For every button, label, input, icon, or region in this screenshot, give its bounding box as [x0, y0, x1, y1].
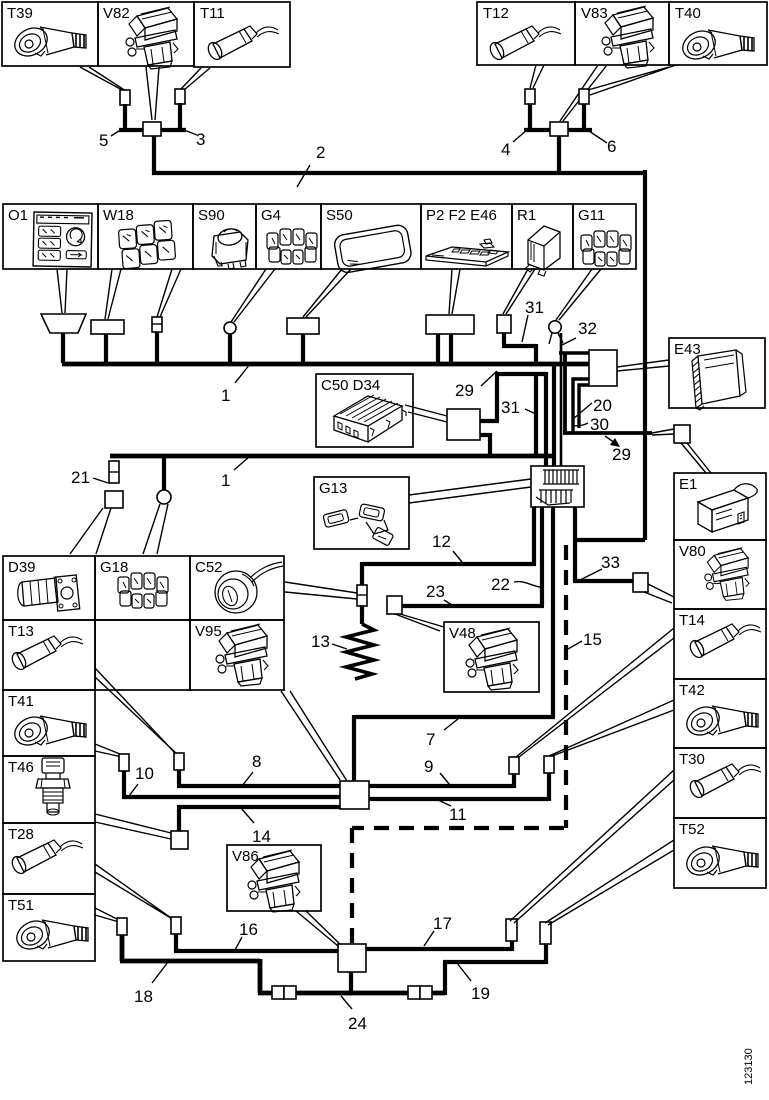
svg-text:T13: T13 [8, 623, 34, 640]
svg-text:T12: T12 [483, 5, 509, 22]
svg-text:T51: T51 [8, 897, 34, 914]
svg-text:G18: G18 [100, 559, 128, 576]
svg-text:T30: T30 [679, 751, 705, 768]
svg-text:G13: G13 [319, 480, 347, 497]
svg-text:C50 D34: C50 D34 [321, 377, 380, 394]
svg-text:18: 18 [134, 987, 153, 1006]
svg-text:V86: V86 [232, 848, 259, 865]
svg-text:T52: T52 [679, 821, 705, 838]
svg-text:T14: T14 [679, 612, 705, 629]
svg-text:8: 8 [252, 752, 261, 771]
svg-text:5: 5 [99, 131, 108, 150]
svg-text:20: 20 [593, 396, 612, 415]
svg-text:24: 24 [348, 1014, 367, 1033]
svg-text:T42: T42 [679, 682, 705, 699]
svg-text:T41: T41 [8, 693, 34, 710]
svg-text:11: 11 [449, 805, 467, 824]
svg-text:29: 29 [612, 445, 631, 464]
svg-text:9: 9 [424, 757, 433, 776]
svg-text:E43: E43 [674, 341, 701, 358]
svg-text:29: 29 [455, 381, 474, 400]
svg-text:V83: V83 [581, 5, 608, 22]
svg-text:4: 4 [501, 140, 510, 159]
svg-text:D39: D39 [8, 559, 36, 576]
svg-text:P2 F2 E46: P2 F2 E46 [426, 207, 497, 224]
svg-text:33: 33 [601, 553, 620, 572]
svg-text:10: 10 [135, 764, 154, 783]
svg-text:W18: W18 [103, 207, 134, 224]
svg-text:23: 23 [426, 582, 445, 601]
svg-text:V82: V82 [103, 5, 130, 22]
svg-text:T28: T28 [8, 826, 34, 843]
svg-text:G11: G11 [578, 207, 605, 224]
svg-text:15: 15 [583, 630, 602, 649]
svg-text:7: 7 [426, 730, 435, 749]
svg-text:123130: 123130 [743, 1048, 755, 1085]
svg-text:16: 16 [239, 920, 258, 939]
svg-text:O1: O1 [8, 207, 28, 224]
svg-text:3: 3 [196, 130, 205, 149]
svg-text:T40: T40 [675, 5, 701, 22]
svg-text:2: 2 [316, 143, 325, 162]
svg-text:T11: T11 [200, 5, 225, 22]
svg-text:V80: V80 [679, 543, 706, 560]
svg-text:E1: E1 [679, 476, 697, 493]
svg-text:31: 31 [501, 398, 520, 417]
svg-text:19: 19 [471, 984, 490, 1003]
svg-text:14: 14 [252, 827, 271, 846]
svg-text:T39: T39 [7, 5, 33, 22]
svg-text:6: 6 [607, 137, 616, 156]
svg-text:12: 12 [432, 532, 451, 551]
svg-text:G4: G4 [261, 207, 281, 224]
svg-text:V48: V48 [449, 625, 476, 642]
svg-text:21: 21 [71, 468, 90, 487]
svg-text:C52: C52 [195, 559, 223, 576]
svg-text:31: 31 [525, 298, 544, 317]
svg-text:T46: T46 [8, 759, 34, 776]
svg-text:1: 1 [221, 471, 230, 490]
svg-text:32: 32 [578, 319, 597, 338]
svg-text:17: 17 [433, 914, 452, 933]
svg-text:13: 13 [311, 632, 330, 651]
svg-text:1: 1 [221, 386, 230, 405]
svg-text:S50: S50 [326, 207, 353, 224]
svg-text:22: 22 [491, 575, 510, 594]
svg-text:R1: R1 [517, 207, 536, 224]
svg-text:S90: S90 [198, 207, 225, 224]
svg-text:V95: V95 [195, 623, 222, 640]
